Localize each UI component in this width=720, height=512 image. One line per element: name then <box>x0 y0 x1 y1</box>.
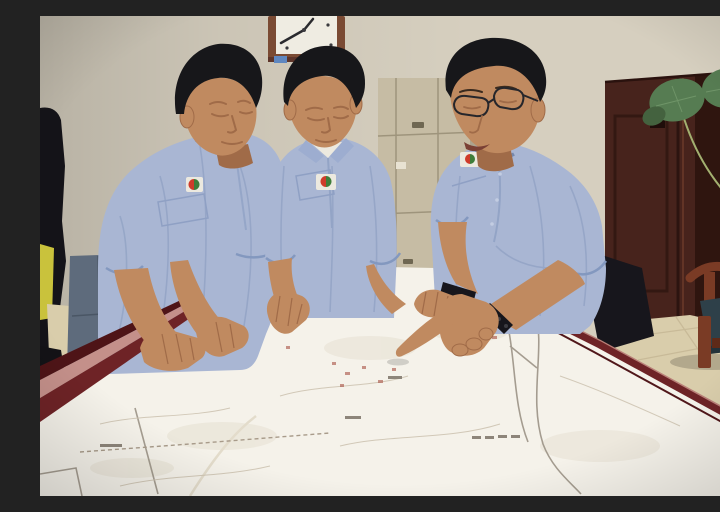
photo-three-workers-map: Three workers in light blue uniform shir… <box>40 16 720 496</box>
photo-vignette <box>40 16 720 496</box>
photo-canvas <box>40 16 720 496</box>
